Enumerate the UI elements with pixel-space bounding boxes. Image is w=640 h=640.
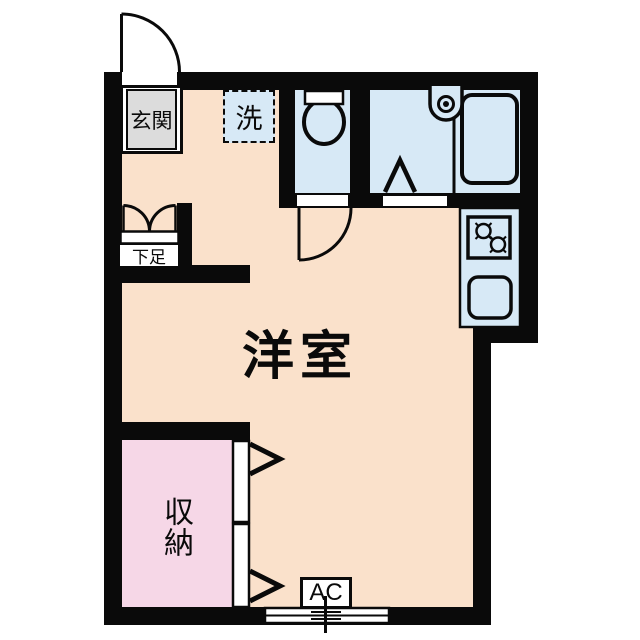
window-symbol [265,608,389,623]
window-center-mullion [324,596,327,633]
entrance-area: 玄関 [120,85,183,154]
entrance-door-arc [122,14,180,72]
floorplan: 玄関 洗 下足 洋室 収納 AC [0,0,640,640]
kitchen-sink-icon [469,277,511,318]
entrance-label: 玄関 [126,89,177,150]
shoe-cabinet-label: 下足 [118,243,180,268]
washer-space-label: 洗 [223,90,275,143]
closet-label: 収納 [155,487,195,567]
main-room-label: 洋室 [222,320,378,382]
toilet-icon [304,91,344,144]
bathtub-icon [462,95,517,183]
